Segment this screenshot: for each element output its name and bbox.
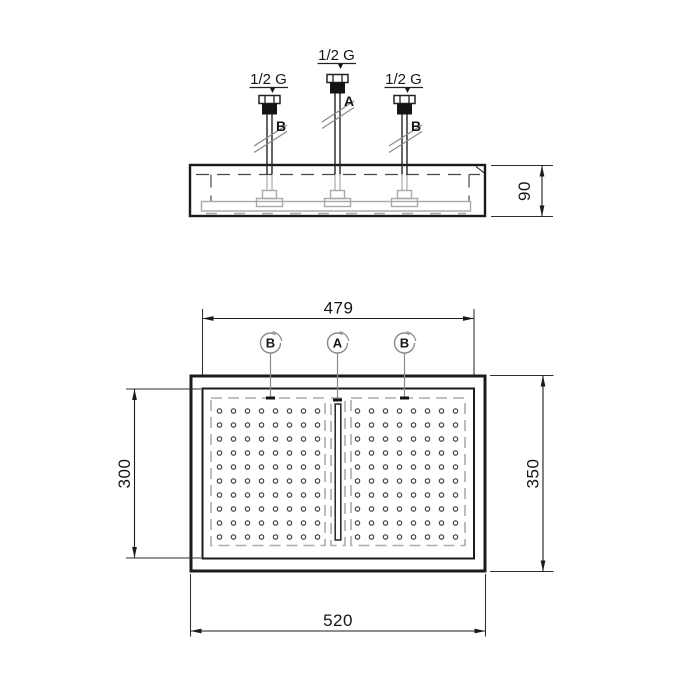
- nozzle-dot: [397, 409, 401, 413]
- technical-drawing: 1/2 G B 1/2 G: [0, 0, 700, 700]
- nozzle-dot: [315, 521, 319, 525]
- dimension-520: 520: [191, 574, 486, 637]
- shower-head-drawing: 1/2 G B 1/2 G: [0, 0, 700, 700]
- nozzle-dot: [369, 423, 373, 427]
- nozzle-dot: [259, 493, 263, 497]
- nozzle-dot: [315, 423, 319, 427]
- nozzle-dot: [315, 535, 319, 539]
- nozzle-dot: [369, 507, 373, 511]
- nozzle-dot: [231, 423, 235, 427]
- leader-tick: [333, 399, 342, 402]
- nozzle-dot: [369, 409, 373, 413]
- nozzle-dot: [315, 409, 319, 413]
- nozzle-dot: [369, 535, 373, 539]
- nozzle-dot: [231, 465, 235, 469]
- nozzle-dot: [439, 507, 443, 511]
- nozzle-dot: [453, 507, 457, 511]
- nozzle-dot: [287, 423, 291, 427]
- nozzle-dot: [287, 493, 291, 497]
- nozzle-dot: [355, 409, 359, 413]
- dimension-90: 90: [491, 166, 553, 217]
- threaded-connector-icon: [327, 75, 348, 94]
- nozzle-dot: [369, 451, 373, 455]
- nozzle-dot: [217, 437, 221, 441]
- nozzle-dot: [273, 437, 277, 441]
- nozzle-dot: [439, 423, 443, 427]
- nozzle-dot: [273, 479, 277, 483]
- nozzle-dot: [383, 423, 387, 427]
- nozzle-dot: [411, 479, 415, 483]
- dimension-text: 90: [515, 181, 534, 201]
- nozzle-dot: [245, 493, 249, 497]
- thread-label: 1/2 G: [250, 71, 287, 88]
- nozzle-dot: [301, 521, 305, 525]
- nozzle-dot: [273, 423, 277, 427]
- body-hidden-lines: [196, 175, 480, 202]
- nozzle-dot: [273, 507, 277, 511]
- nozzle-dot: [245, 521, 249, 525]
- nozzle-dot: [425, 423, 429, 427]
- nozzle-dot: [231, 521, 235, 525]
- nozzle-dot: [425, 479, 429, 483]
- pipe-letter: B: [276, 118, 286, 134]
- thread-leader-arrow-icon: [338, 64, 343, 69]
- nozzle-dot: [369, 521, 373, 525]
- pipe-assembly-right: 1/2 G B: [385, 71, 424, 175]
- nozzle-dot: [259, 479, 263, 483]
- pipe-letter: B: [411, 118, 421, 134]
- body-housing: [190, 165, 486, 216]
- nozzle-dot: [245, 409, 249, 413]
- nozzle-dot: [245, 535, 249, 539]
- nozzle-dot: [259, 437, 263, 441]
- nozzle-dot: [287, 521, 291, 525]
- nozzle-dot: [259, 423, 263, 427]
- outer-frame: [191, 376, 485, 571]
- dimension-300: 300: [115, 389, 201, 558]
- dimension-text: 300: [115, 459, 134, 489]
- nozzle-dot: [301, 479, 305, 483]
- slot-hidden-border: [331, 398, 345, 546]
- nozzle-dot: [383, 409, 387, 413]
- nozzle-dot: [217, 423, 221, 427]
- nozzle-dot: [231, 437, 235, 441]
- nozzle-dot: [217, 493, 221, 497]
- nozzle-dot: [453, 493, 457, 497]
- nozzle-dot: [301, 507, 305, 511]
- nozzle-dot: [231, 493, 235, 497]
- nozzle-dot: [315, 451, 319, 455]
- nozzle-dot: [425, 521, 429, 525]
- nozzle-dot: [287, 451, 291, 455]
- nozzle-dot: [369, 479, 373, 483]
- nozzle-dot: [231, 451, 235, 455]
- nozzle-dot: [259, 521, 263, 525]
- nozzle-dot: [383, 465, 387, 469]
- nozzle-dot: [453, 535, 457, 539]
- nozzle-dot: [301, 423, 305, 427]
- nozzle-field-left-border: [211, 398, 325, 546]
- nozzle-dot: [453, 465, 457, 469]
- nozzle-dot: [301, 437, 305, 441]
- balloon-center: A: [328, 332, 349, 402]
- balloon-letter: A: [333, 336, 343, 351]
- balloon-letter: B: [266, 336, 275, 351]
- nozzle-dot: [287, 465, 291, 469]
- nozzle-dot: [217, 535, 221, 539]
- nozzle-dot: [301, 409, 305, 413]
- nozzle-dot: [439, 465, 443, 469]
- nozzle-dot: [245, 507, 249, 511]
- nozzle-dot: [411, 423, 415, 427]
- nozzle-dot: [411, 521, 415, 525]
- nozzle-dot: [245, 479, 249, 483]
- nozzle-dot: [439, 493, 443, 497]
- nozzle-dot: [425, 451, 429, 455]
- nozzle-dot: [245, 423, 249, 427]
- dimension-text: 479: [324, 299, 354, 318]
- nozzle-dot: [425, 437, 429, 441]
- nozzle-dot: [383, 535, 387, 539]
- thread-leader-arrow-icon: [405, 88, 410, 93]
- nozzle-dot: [355, 423, 359, 427]
- nozzle-dot: [453, 409, 457, 413]
- nozzle-dot: [439, 521, 443, 525]
- nozzle-dot: [411, 507, 415, 511]
- nozzle-dot: [301, 535, 305, 539]
- nozzle-dot: [369, 493, 373, 497]
- nozzle-dot: [301, 451, 305, 455]
- nozzle-dot: [369, 437, 373, 441]
- nozzle-dot: [217, 465, 221, 469]
- spray-face: [203, 389, 475, 559]
- pipe-assembly-center: 1/2 G A: [318, 47, 357, 175]
- nozzle-dot: [355, 535, 359, 539]
- nozzle-dot: [425, 493, 429, 497]
- nozzle-dot: [425, 535, 429, 539]
- nozzle-dot: [355, 437, 359, 441]
- threaded-connector-icon: [394, 96, 415, 115]
- nozzle-dot: [439, 451, 443, 455]
- nozzle-dot: [397, 535, 401, 539]
- nozzle-dot: [383, 479, 387, 483]
- balloon-letter: B: [400, 336, 409, 351]
- nozzle-dot: [217, 409, 221, 413]
- nozzle-dot: [397, 479, 401, 483]
- nozzle-dot: [355, 451, 359, 455]
- dimension-text: 350: [524, 459, 543, 489]
- nozzle-dot: [259, 451, 263, 455]
- nozzle-dot: [453, 479, 457, 483]
- nozzle-dot: [301, 465, 305, 469]
- nozzle-dot: [273, 465, 277, 469]
- pipe-assembly-left: 1/2 G B: [250, 71, 289, 175]
- nozzle-field-right-dots: [355, 409, 457, 539]
- dimension-text: 520: [323, 611, 353, 630]
- nozzle-dot: [259, 409, 263, 413]
- nozzle-dot: [439, 479, 443, 483]
- nozzle-dot: [287, 507, 291, 511]
- nozzle-dot: [453, 451, 457, 455]
- thread-label: 1/2 G: [318, 47, 355, 64]
- nozzle-dot: [287, 409, 291, 413]
- nozzle-dot: [397, 437, 401, 441]
- nozzle-dot: [217, 521, 221, 525]
- plan-view: B A B 479 30: [115, 299, 554, 637]
- nozzle-dot: [355, 465, 359, 469]
- nozzle-dot: [355, 493, 359, 497]
- nozzle-dot: [245, 451, 249, 455]
- nozzle-dot: [217, 479, 221, 483]
- nozzle-dot: [259, 507, 263, 511]
- nozzle-dot: [397, 493, 401, 497]
- nozzle-dot: [411, 451, 415, 455]
- top-view: 1/2 G B 1/2 G: [190, 47, 553, 217]
- nozzle-dot: [301, 493, 305, 497]
- nozzle-dot: [453, 521, 457, 525]
- nozzle-dot: [411, 409, 415, 413]
- nozzle-dot: [287, 437, 291, 441]
- nozzle-dot: [383, 451, 387, 455]
- nozzle-dot: [273, 409, 277, 413]
- nozzle-field-right-border: [351, 398, 465, 546]
- nozzle-dot: [453, 423, 457, 427]
- nozzle-dot: [315, 479, 319, 483]
- nozzle-dot: [425, 465, 429, 469]
- nozzle-dot: [273, 493, 277, 497]
- nozzle-dot: [231, 479, 235, 483]
- nozzle-dot: [245, 437, 249, 441]
- nozzle-dot: [425, 507, 429, 511]
- nozzle-dot: [425, 409, 429, 413]
- nozzle-dot: [355, 507, 359, 511]
- nozzle-dot: [453, 437, 457, 441]
- nozzle-dot: [397, 451, 401, 455]
- nozzle-dot: [273, 535, 277, 539]
- nozzle-dot: [315, 507, 319, 511]
- nozzle-dot: [439, 535, 443, 539]
- nozzle-dot: [383, 521, 387, 525]
- nozzle-field-left-dots: [217, 409, 319, 539]
- nozzle-dot: [259, 535, 263, 539]
- nozzle-dot: [355, 479, 359, 483]
- nozzle-dot: [383, 493, 387, 497]
- nozzle-dot: [369, 465, 373, 469]
- nozzle-dot: [397, 507, 401, 511]
- nozzle-dot: [259, 465, 263, 469]
- nozzle-dot: [383, 437, 387, 441]
- nozzle-dot: [411, 465, 415, 469]
- nozzle-dot: [315, 437, 319, 441]
- nozzle-dot: [439, 409, 443, 413]
- nozzle-dot: [231, 409, 235, 413]
- nozzle-dot: [315, 465, 319, 469]
- leader-tick: [400, 397, 409, 400]
- nozzle-dot: [397, 465, 401, 469]
- nozzle-dot: [397, 423, 401, 427]
- nozzle-dot: [273, 521, 277, 525]
- nozzle-dot: [411, 535, 415, 539]
- dimension-350: 350: [490, 376, 554, 572]
- nozzle-dot: [411, 437, 415, 441]
- pipe-letter: A: [344, 93, 354, 109]
- nozzle-dot: [217, 507, 221, 511]
- leader-tick: [266, 397, 275, 400]
- nozzle-dot: [245, 465, 249, 469]
- nozzle-dot: [383, 507, 387, 511]
- nozzle-dot: [231, 507, 235, 511]
- nozzle-dot: [439, 437, 443, 441]
- nozzle-dot: [287, 479, 291, 483]
- nozzle-dot: [231, 535, 235, 539]
- nozzle-dot: [217, 451, 221, 455]
- nozzle-dot: [411, 493, 415, 497]
- nozzle-dot: [287, 535, 291, 539]
- nozzle-dot: [355, 521, 359, 525]
- nozzle-dot: [273, 451, 277, 455]
- nozzle-dot: [315, 493, 319, 497]
- threaded-connector-icon: [259, 96, 280, 115]
- nozzle-dot: [397, 521, 401, 525]
- nozzle-slot: [335, 404, 341, 540]
- thread-label: 1/2 G: [385, 71, 422, 88]
- thread-leader-arrow-icon: [270, 88, 275, 93]
